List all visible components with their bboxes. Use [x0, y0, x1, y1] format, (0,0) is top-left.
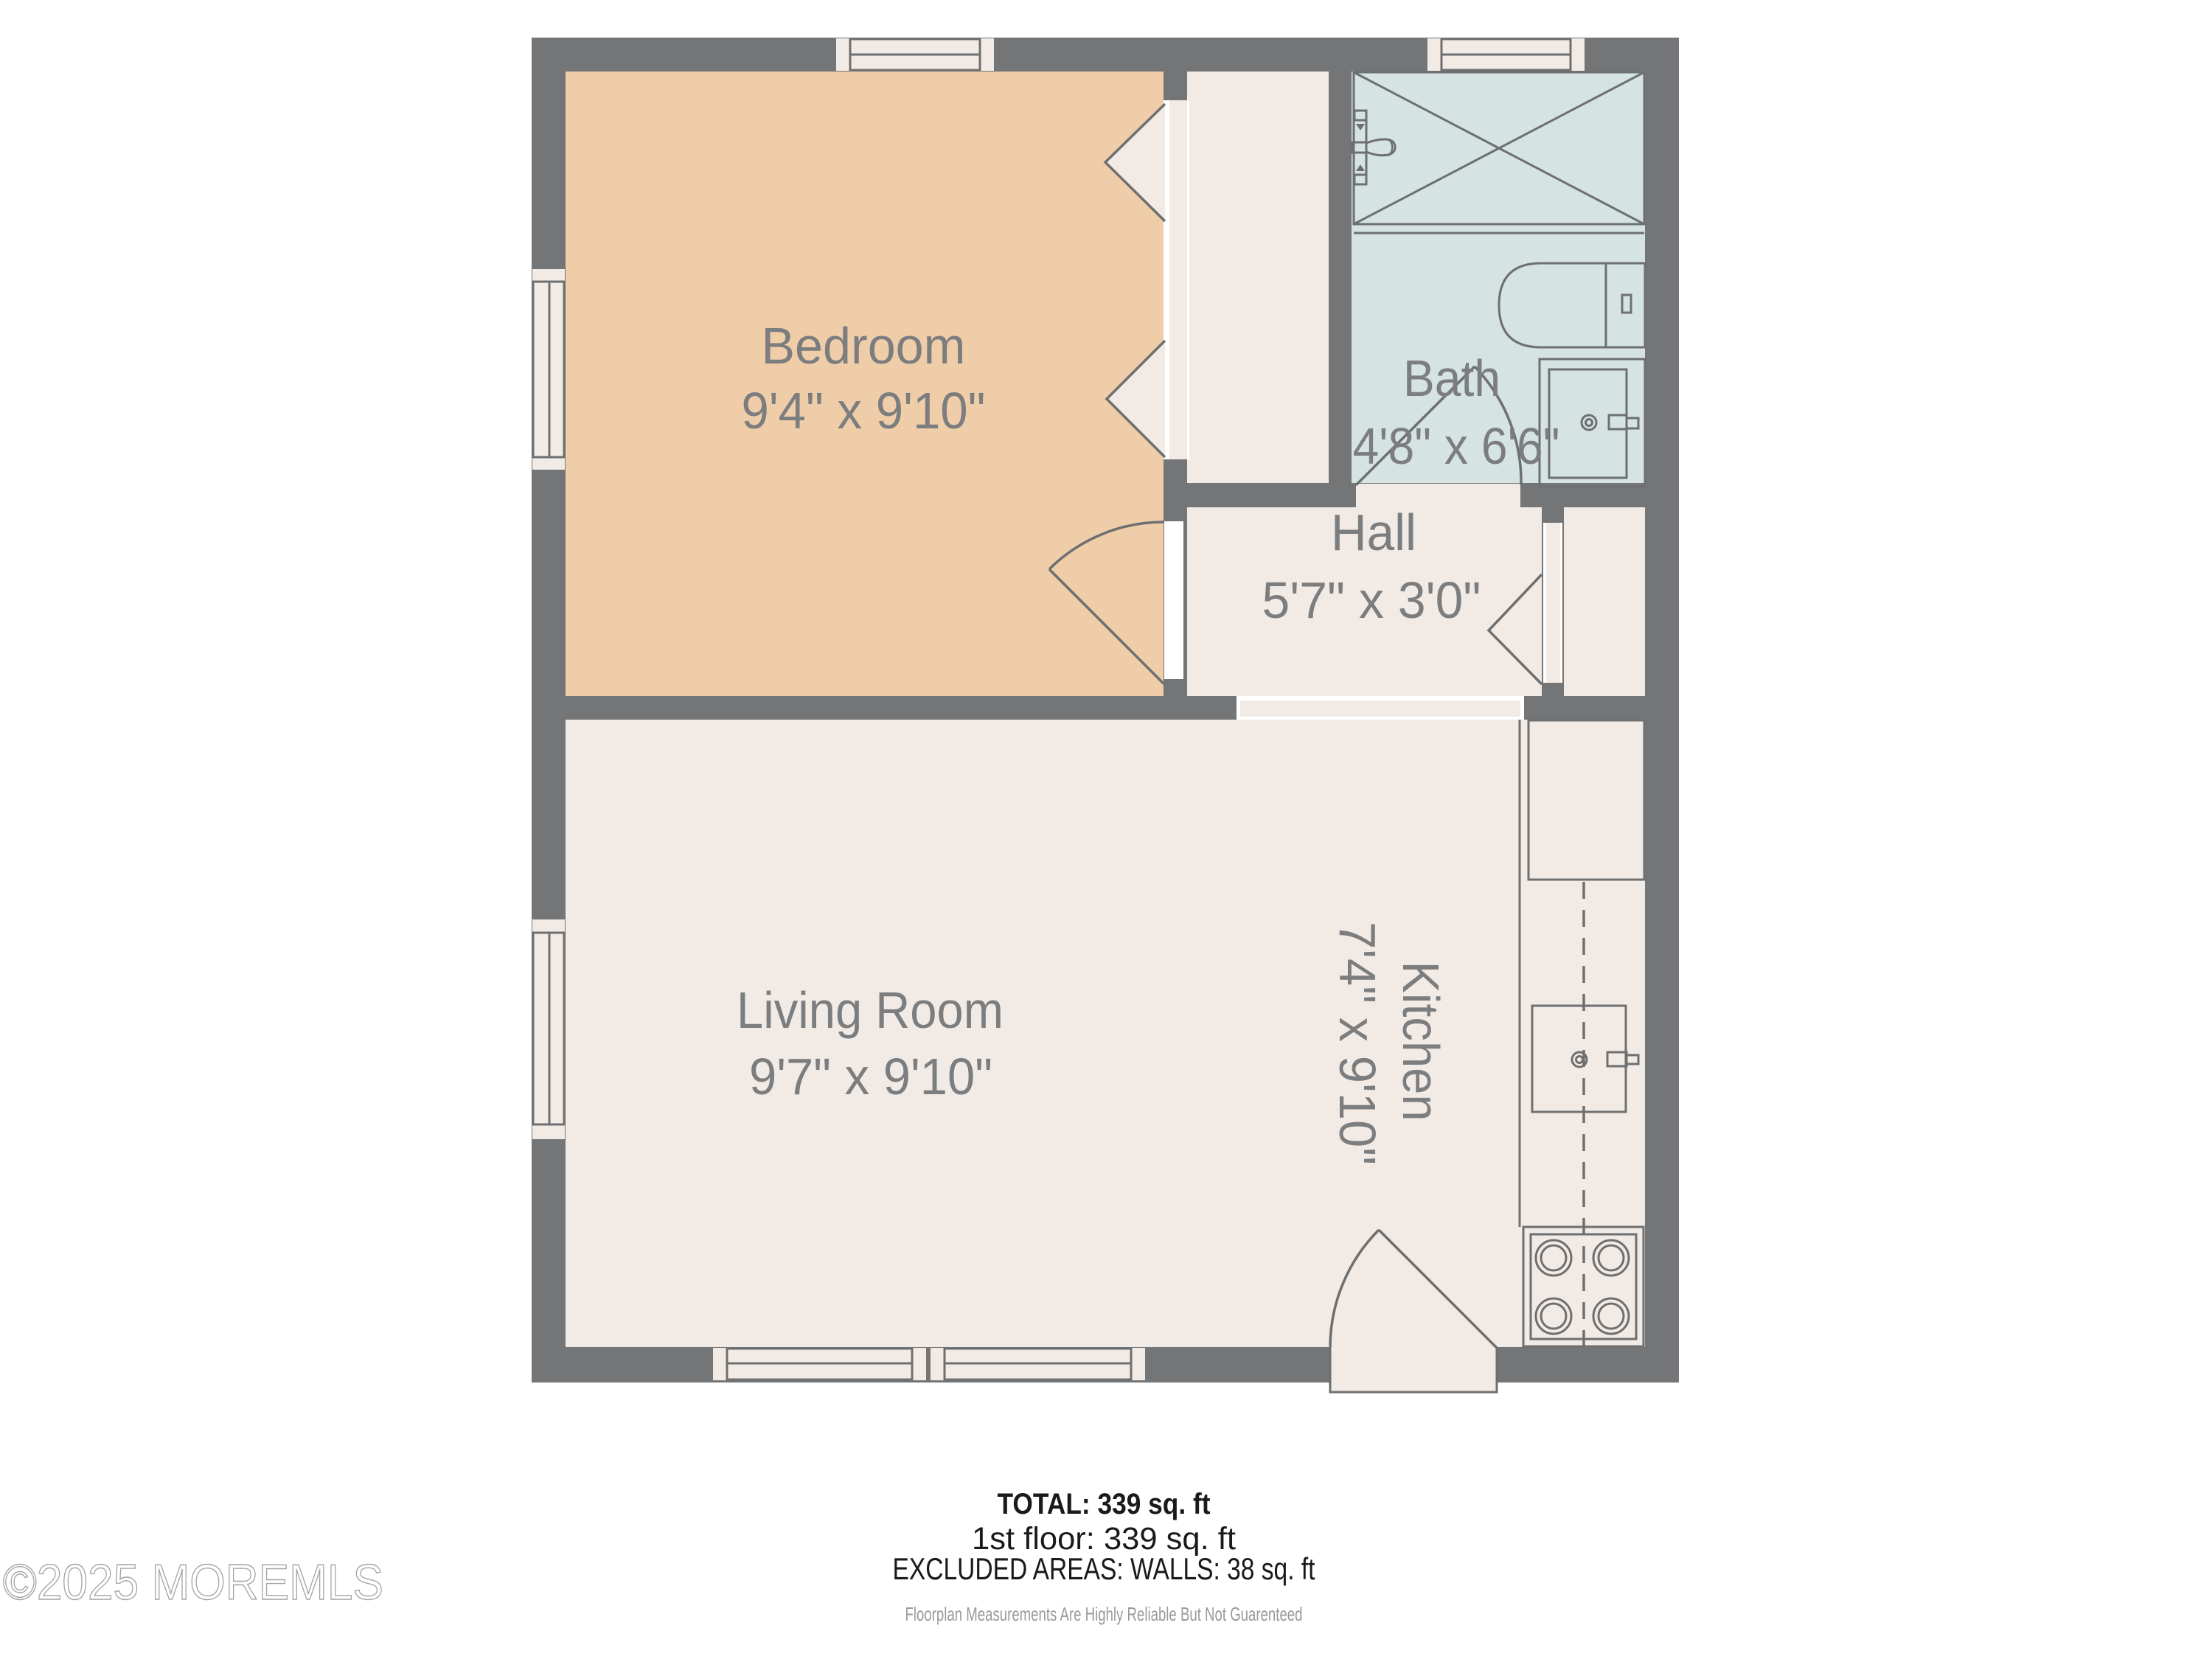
- svg-text:9'7" x 9'10": 9'7" x 9'10": [749, 1048, 992, 1105]
- svg-text:Living Room: Living Room: [737, 981, 1004, 1039]
- svg-text:9'4" x 9'10": 9'4" x 9'10": [742, 382, 986, 439]
- svg-text:Floorplan Measurements Are Hig: Floorplan Measurements Are Highly Reliab…: [905, 1603, 1303, 1625]
- svg-text:Bedroom: Bedroom: [762, 317, 966, 375]
- svg-text:Bath: Bath: [1403, 349, 1500, 407]
- svg-text:Kitchen: Kitchen: [1392, 961, 1450, 1121]
- svg-text:©2025 MOREMLS: ©2025 MOREMLS: [3, 1554, 383, 1610]
- svg-text:TOTAL: 339 sq. ft: TOTAL: 339 sq. ft: [998, 1488, 1211, 1520]
- svg-text:7'4" x 9'10": 7'4" x 9'10": [1329, 922, 1386, 1165]
- svg-text:4'8" x 6'6": 4'8" x 6'6": [1353, 417, 1560, 475]
- svg-text:5'7" x 3'0": 5'7" x 3'0": [1262, 571, 1481, 629]
- svg-text:Hall: Hall: [1331, 504, 1416, 561]
- svg-text:EXCLUDED AREAS: WALLS: 38 sq.: EXCLUDED AREAS: WALLS: 38 sq. ft: [893, 1551, 1315, 1586]
